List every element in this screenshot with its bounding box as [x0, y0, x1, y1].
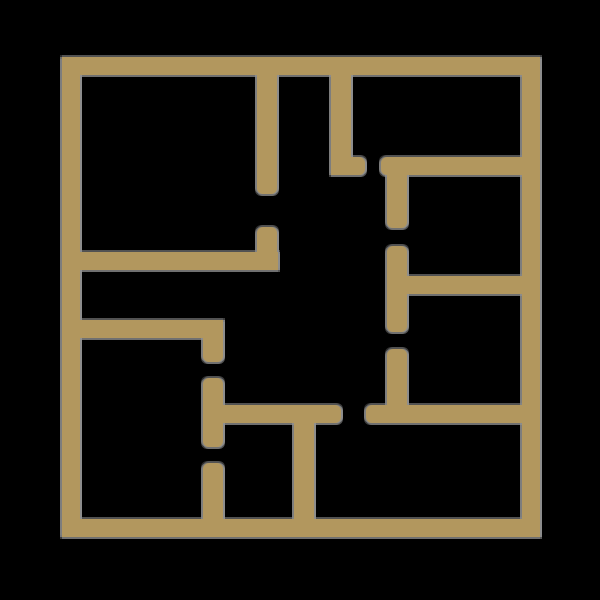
wall-left-horizontal-upper — [70, 252, 278, 270]
canvas-background — [0, 0, 600, 600]
wall-bottom-center-vertical — [294, 423, 314, 523]
wall-left-divider-seg1 — [203, 338, 223, 362]
wall-lower-horizontal-left — [223, 405, 341, 423]
wall-left-divider-seg3 — [203, 463, 223, 523]
wall-left-horizontal-lower — [70, 320, 223, 338]
wall-outer-right — [522, 57, 540, 537]
floor-plan — [0, 0, 600, 600]
wall-top-center-vertical-upper — [257, 75, 277, 194]
wall-outer-left — [62, 57, 80, 537]
wall-outer-top — [62, 57, 540, 75]
wall-top-right-vertical-foot — [331, 157, 365, 175]
wall-top-right-horizontal — [381, 157, 522, 175]
wall-left-divider-seg2 — [203, 378, 223, 447]
wall-right-divider-seg1 — [387, 175, 407, 228]
wall-right-middle-horizontal — [402, 276, 522, 294]
wall-lower-horizontal-right — [366, 405, 522, 423]
